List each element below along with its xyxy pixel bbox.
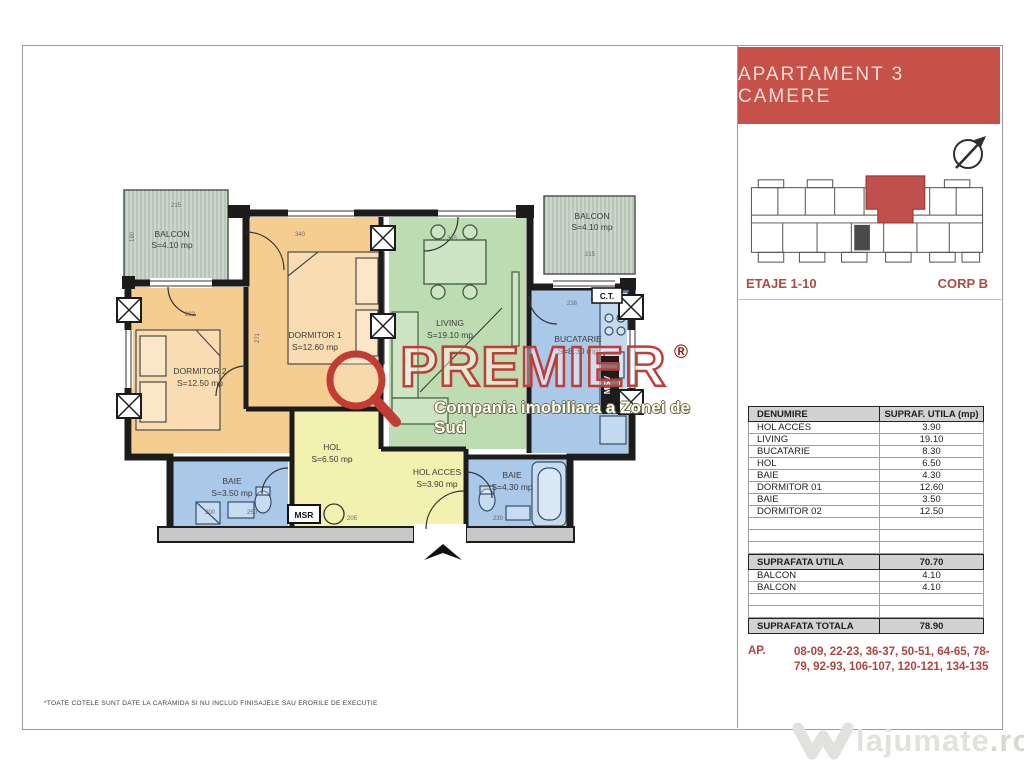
dimension-label: 205 [347, 516, 358, 522]
empty-row [748, 606, 984, 618]
table-header-row: DENUMIRE SUPRAF. UTILA (mp) [748, 406, 984, 422]
room-label: DORMITOR 1 [288, 330, 341, 340]
apartment-numbers-row: AP. 08-09, 22-23, 36-37, 50-51, 64-65, 7… [748, 645, 990, 675]
msr-label: MSR [295, 510, 314, 520]
table-row: BALCON4.10 [748, 570, 984, 582]
room-label: BALCON [155, 229, 190, 239]
highlighted-unit [866, 176, 925, 223]
room-label: BAIE [222, 476, 242, 486]
room-label: BALCON [575, 211, 610, 221]
staircase [854, 225, 870, 250]
floor-corp-row: ETAJE 1-10 CORP B [746, 276, 988, 291]
building-key-plan [746, 172, 988, 268]
col-header-name: DENUMIRE [749, 407, 880, 421]
room-area: S=12.60 mp [292, 342, 338, 352]
ct-label: C.T. [600, 292, 614, 301]
site-name: lajumate [856, 723, 990, 758]
site-tld: .ro [990, 723, 1024, 758]
msv-label: MSV [602, 375, 612, 394]
table-row: BALCON4.10 [748, 582, 984, 594]
dimension-label: 215 [171, 203, 182, 209]
area-table: DENUMIRE SUPRAF. UTILA (mp) HOL ACCES3.9… [748, 406, 984, 634]
table-row: BAIE4.30 [748, 470, 984, 482]
room-label: DORMITOR 2 [173, 366, 226, 376]
table-row: DORMITOR 0212.50 [748, 506, 984, 518]
etaje-label: ETAJE 1-10 [746, 276, 817, 291]
lajumate-logo-icon [790, 716, 856, 766]
entrance-arrow-icon [424, 544, 462, 560]
room-label: BUCATARIE [554, 334, 602, 344]
msv-box: MSV [601, 356, 619, 414]
room-area: S=6.50 mp [311, 454, 353, 464]
entrance-gap [414, 524, 466, 543]
table-row: HOL ACCES3.90 [748, 422, 984, 434]
table-row: BAIE3.50 [748, 494, 984, 506]
room-area: S=8.30 mp [557, 346, 599, 356]
dimension-label: 271 [255, 332, 261, 343]
room-label: LIVING [436, 318, 464, 328]
corp-label: CORP B [938, 276, 988, 291]
room-area: S=4.10 mp [571, 222, 613, 232]
dimension-label: 230 [493, 516, 504, 522]
table-row: HOL6.50 [748, 458, 984, 470]
dimension-label: 215 [585, 252, 596, 258]
room-label: HOL ACCES [413, 467, 462, 477]
room-area: S=12.50 mp [177, 378, 223, 388]
room-area: S=19.10 mp [427, 330, 473, 340]
col-header-area: SUPRAF. UTILA (mp) [880, 407, 983, 421]
dimension-label: 282 [185, 312, 196, 318]
room-balcon-right [544, 196, 635, 274]
room-area: S=4.30 mp [491, 482, 533, 492]
empty-row [748, 542, 984, 554]
empty-row [748, 518, 984, 530]
footnote: *TOATE COTELE SUNT DATE LA CARAMIDA SI N… [44, 700, 378, 707]
table-row: DORMITOR 0112.60 [748, 482, 984, 494]
room-area: S=3.50 mp [211, 488, 253, 498]
table-row: BUCATARIE8.30 [748, 446, 984, 458]
dimension-label: 200 [205, 510, 216, 516]
room-area: S=3.90 mp [416, 479, 458, 489]
dimension-label: 340 [295, 232, 306, 238]
dimension-label: 238 [567, 301, 578, 307]
site-watermark: lajumate.ro [790, 716, 1024, 766]
room-label: HOL [323, 442, 341, 452]
total-row: SUPRAFATA TOTALA 78.90 [748, 618, 984, 634]
ap-label: AP. [748, 645, 794, 675]
dimension-label: 250 [247, 510, 258, 516]
listing-title-banner: APARTAMENT 3 CAMERE [738, 47, 1000, 124]
table-row: LIVING19.10 [748, 434, 984, 446]
north-arrow-icon [940, 128, 996, 176]
room-area: S=4.10 mp [151, 240, 193, 250]
room-label: BAIE [502, 470, 522, 480]
dimension-label: 190 [130, 231, 136, 242]
dimension-label: 345 [447, 236, 458, 242]
ct-box: C.T. [592, 288, 622, 303]
plinth-wall [158, 527, 574, 542]
subtotal-row: SUPRAFATA UTILA 70.70 [748, 554, 984, 570]
empty-row [748, 530, 984, 542]
panel-hline [737, 299, 1001, 300]
page-title: APARTAMENT 3 CAMERE [738, 64, 1000, 108]
ap-numbers: 08-09, 22-23, 36-37, 50-51, 64-65, 78-79… [794, 645, 990, 675]
empty-row [748, 594, 984, 606]
